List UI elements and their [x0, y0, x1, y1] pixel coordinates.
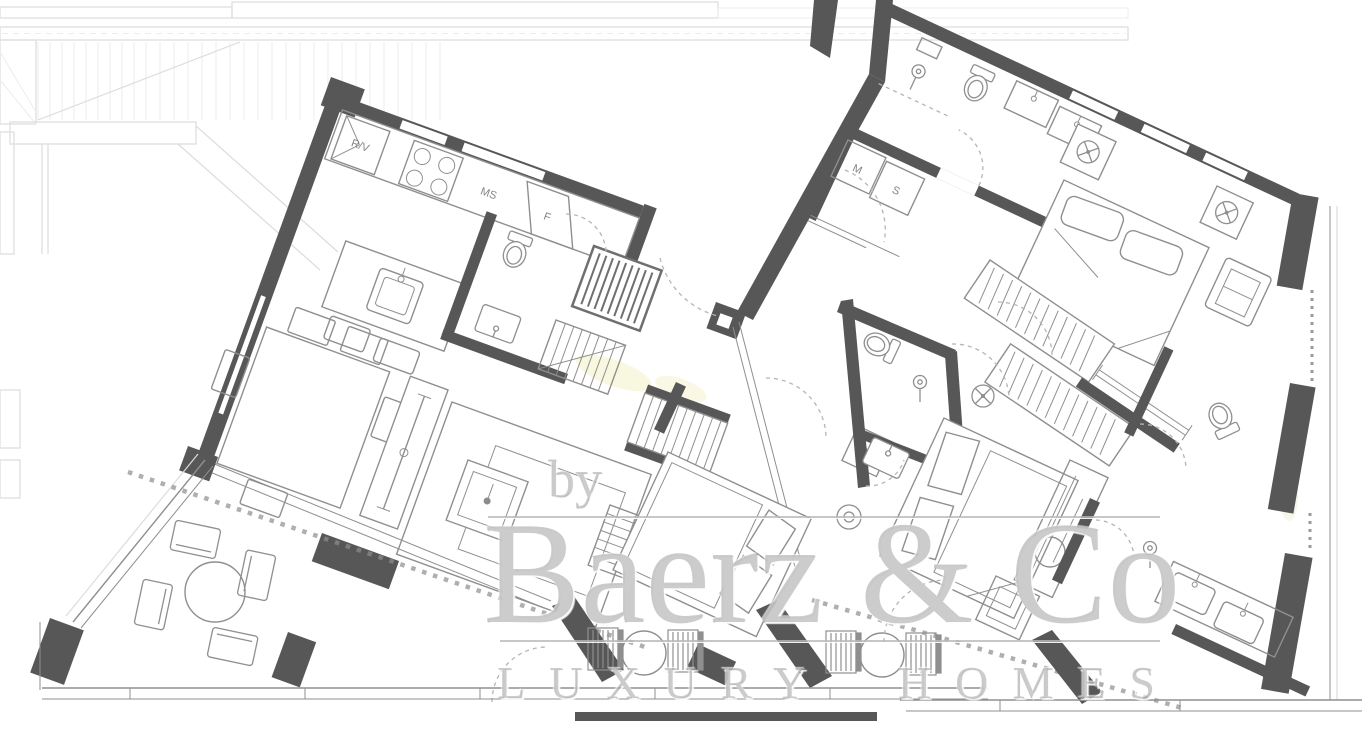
shower-head-icon [914, 376, 927, 403]
stair-upper [538, 320, 625, 394]
shower-head-icon [904, 63, 927, 93]
bedroom-window [1069, 90, 1118, 119]
nightstand [1060, 124, 1116, 180]
bed [880, 418, 1078, 618]
terrace-table [185, 562, 245, 622]
canopy-line [812, 600, 1182, 708]
toilet-icon [499, 231, 533, 271]
toilet-icon [1204, 399, 1240, 440]
nightstand [1200, 186, 1253, 239]
floor-plan-drawing: R/V MS F [0, 0, 1365, 736]
shower-room [1124, 346, 1240, 468]
sink-icon [1213, 601, 1265, 645]
terrace-chair [207, 627, 258, 666]
bedroom-window [1141, 124, 1190, 153]
side-table [446, 460, 528, 542]
armchair [1204, 257, 1272, 327]
terrace-chair [170, 520, 221, 559]
planter [312, 533, 399, 589]
bedroom-2 [613, 378, 920, 637]
terrace-chair [134, 579, 173, 630]
round-side-table [622, 631, 666, 675]
lounge-chair [906, 633, 941, 675]
ceiling-lamp-icon [837, 505, 861, 529]
door-swing [1096, 520, 1134, 556]
faint-stair-treads [38, 42, 440, 120]
toilet-icon [959, 64, 995, 105]
label-microwave: MS [479, 185, 499, 202]
sink-icon [474, 304, 521, 344]
floor-plan-page: R/V MS F [0, 0, 1365, 736]
planter [272, 632, 317, 687]
radiator-grille [572, 246, 662, 331]
right-facade [1261, 193, 1337, 700]
living-sofa-rug [397, 402, 652, 627]
round-side-table [860, 633, 904, 677]
lamp-icon [972, 385, 994, 407]
label-freezer: F [542, 211, 553, 225]
door-swing [766, 378, 826, 438]
label-fridge-freezer: R/V [349, 137, 371, 155]
bedroom-window [1202, 153, 1247, 181]
lounge-chair [668, 630, 703, 672]
shower-head-icon [1144, 542, 1157, 569]
label-dryer: S [890, 184, 902, 198]
lounge-chair [826, 631, 861, 673]
door-swing [492, 647, 547, 702]
kitchen-window [462, 143, 546, 181]
label-washer: M [851, 162, 864, 177]
